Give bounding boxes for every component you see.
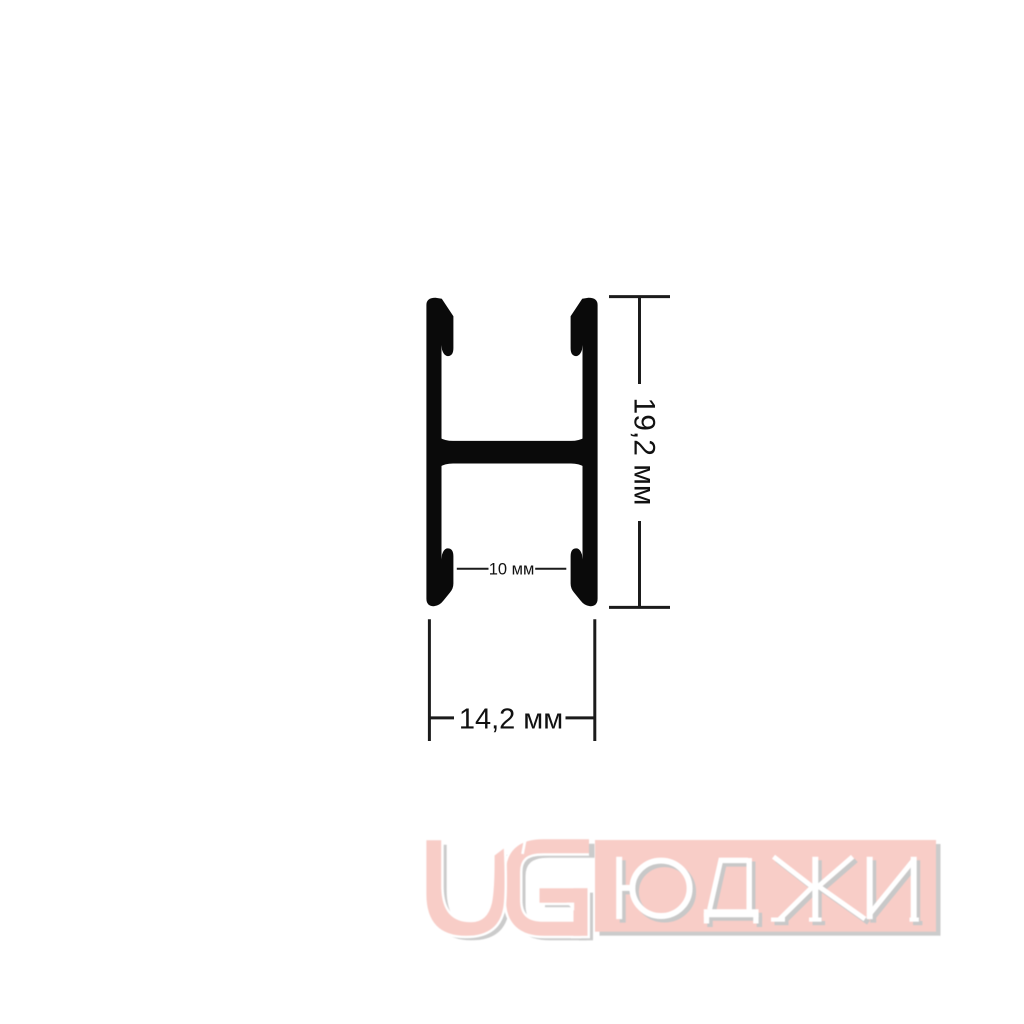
svg-text:19,2 мм: 19,2 мм [628, 398, 661, 506]
svg-text:14,2 мм: 14,2 мм [459, 704, 563, 736]
svg-text:10 мм: 10 мм [489, 561, 535, 579]
